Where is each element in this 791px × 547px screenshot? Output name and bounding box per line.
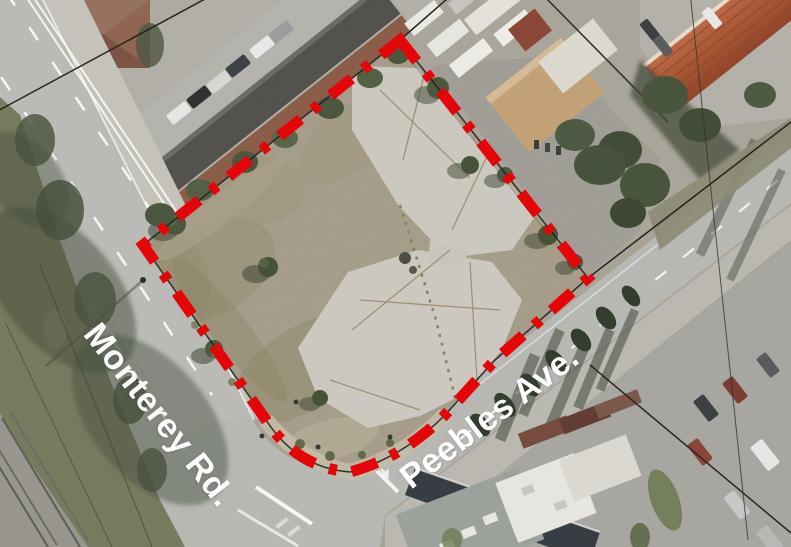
aerial-map-image: Monterey Rd. Peebles Ave. (0, 0, 791, 547)
